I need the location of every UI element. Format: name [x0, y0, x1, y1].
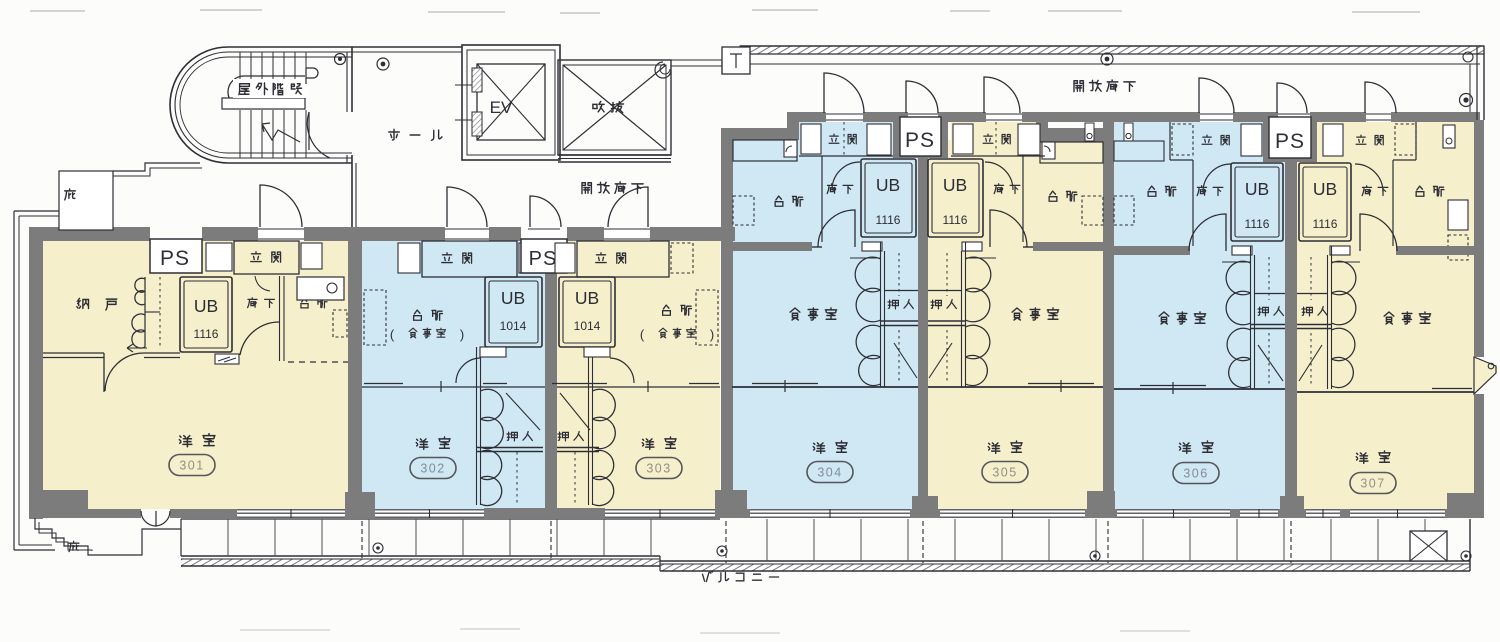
svg-text:UB: UB	[876, 175, 900, 195]
svg-text:1014: 1014	[500, 319, 527, 333]
svg-text:1116: 1116	[194, 327, 219, 341]
svg-text:1116: 1116	[1245, 217, 1270, 231]
svg-text:UB: UB	[943, 175, 967, 195]
svg-text:1014: 1014	[574, 319, 601, 333]
svg-text:PS: PS	[1275, 130, 1305, 153]
svg-text:(: (	[390, 327, 395, 342]
svg-text:PS: PS	[529, 248, 558, 270]
svg-text:305: 305	[992, 466, 1017, 480]
svg-text:1116: 1116	[876, 213, 901, 227]
svg-text:PS: PS	[905, 129, 935, 152]
svg-text:(: (	[640, 327, 645, 342]
svg-text:302: 302	[420, 462, 445, 476]
svg-text:): )	[710, 327, 714, 342]
svg-text:1116: 1116	[1313, 217, 1338, 231]
svg-text:304: 304	[817, 466, 842, 480]
svg-text:1116: 1116	[943, 213, 968, 227]
svg-text:PS: PS	[160, 247, 190, 270]
svg-text:UB: UB	[501, 288, 525, 308]
svg-text:UB: UB	[575, 288, 599, 308]
svg-text:): )	[460, 327, 464, 342]
svg-text:301: 301	[179, 459, 204, 473]
svg-text:303: 303	[646, 462, 671, 476]
svg-text:307: 307	[1360, 477, 1385, 491]
svg-text:UB: UB	[194, 296, 218, 316]
svg-text:UB: UB	[1245, 179, 1269, 199]
svg-text:EV: EV	[490, 98, 513, 117]
svg-text:306: 306	[1183, 467, 1208, 481]
svg-text:UB: UB	[1313, 179, 1337, 199]
